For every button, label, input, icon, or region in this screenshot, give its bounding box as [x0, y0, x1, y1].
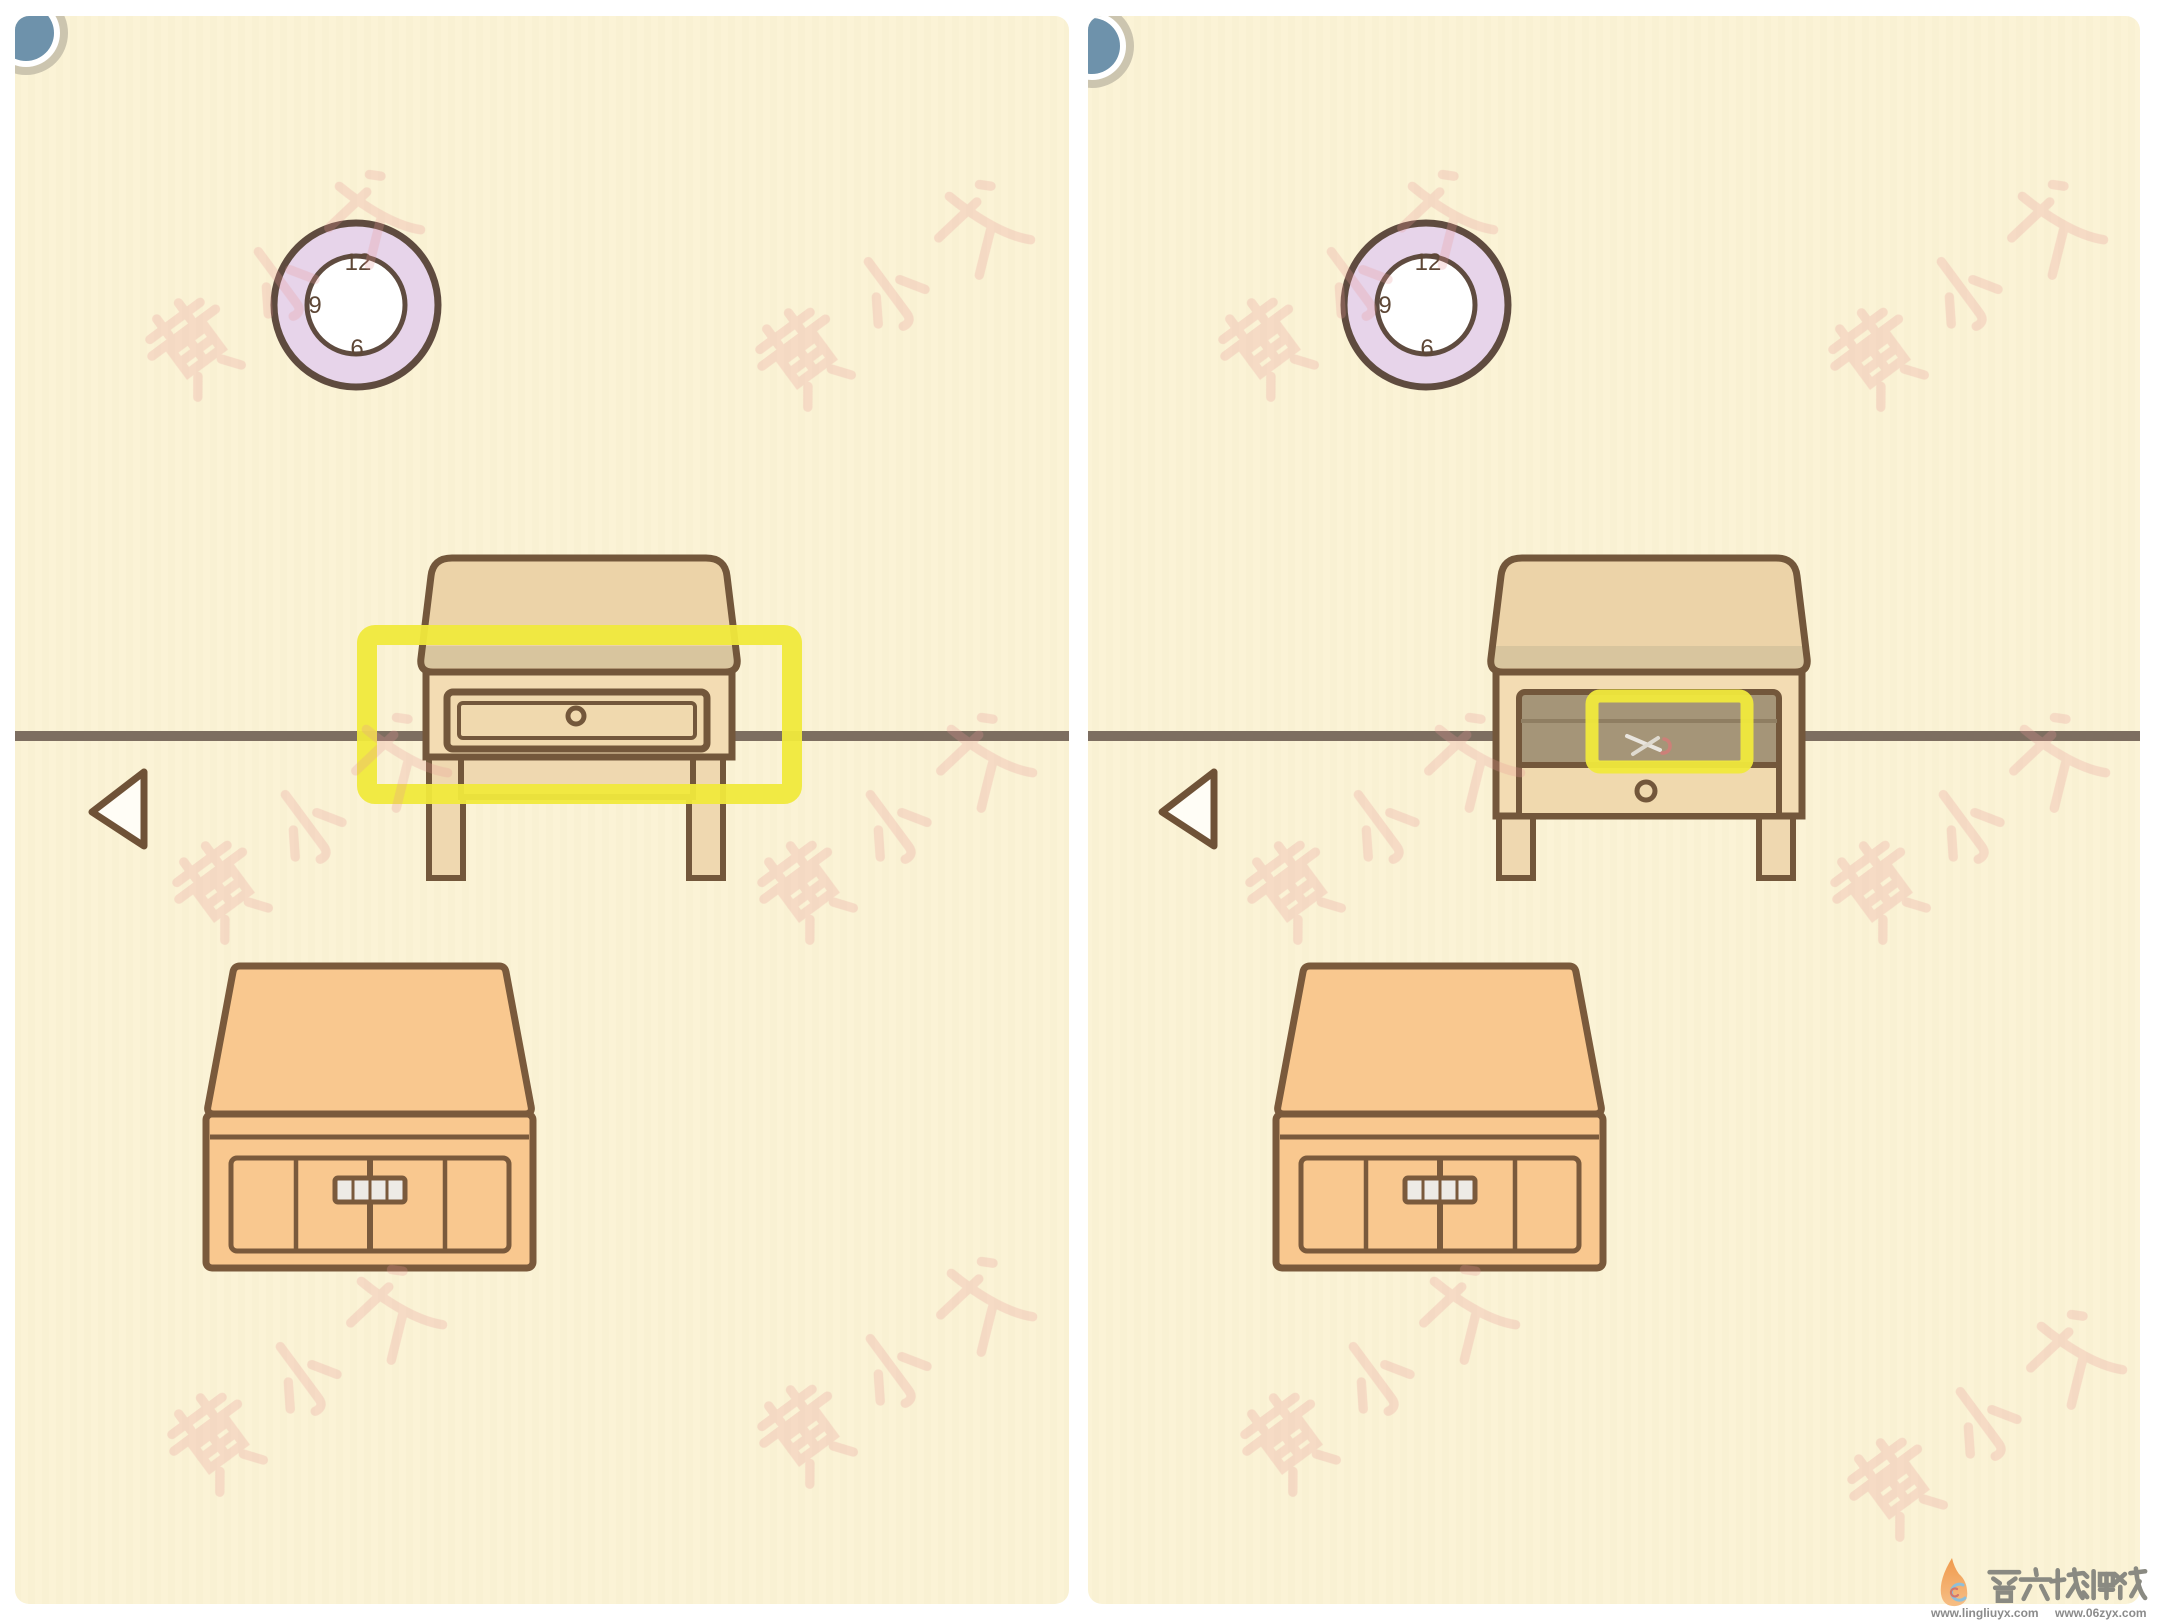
svg-text:6: 6 [1420, 335, 1433, 362]
svg-text:6: 6 [350, 335, 363, 362]
svg-text:9: 9 [1378, 292, 1391, 319]
svg-text:www.06zyx.com: www.06zyx.com [2054, 1606, 2147, 1620]
svg-text:9: 9 [308, 292, 321, 319]
svg-text:www.lingliuyx.com: www.lingliuyx.com [1930, 1606, 2039, 1620]
svg-text:12: 12 [1415, 249, 1442, 276]
